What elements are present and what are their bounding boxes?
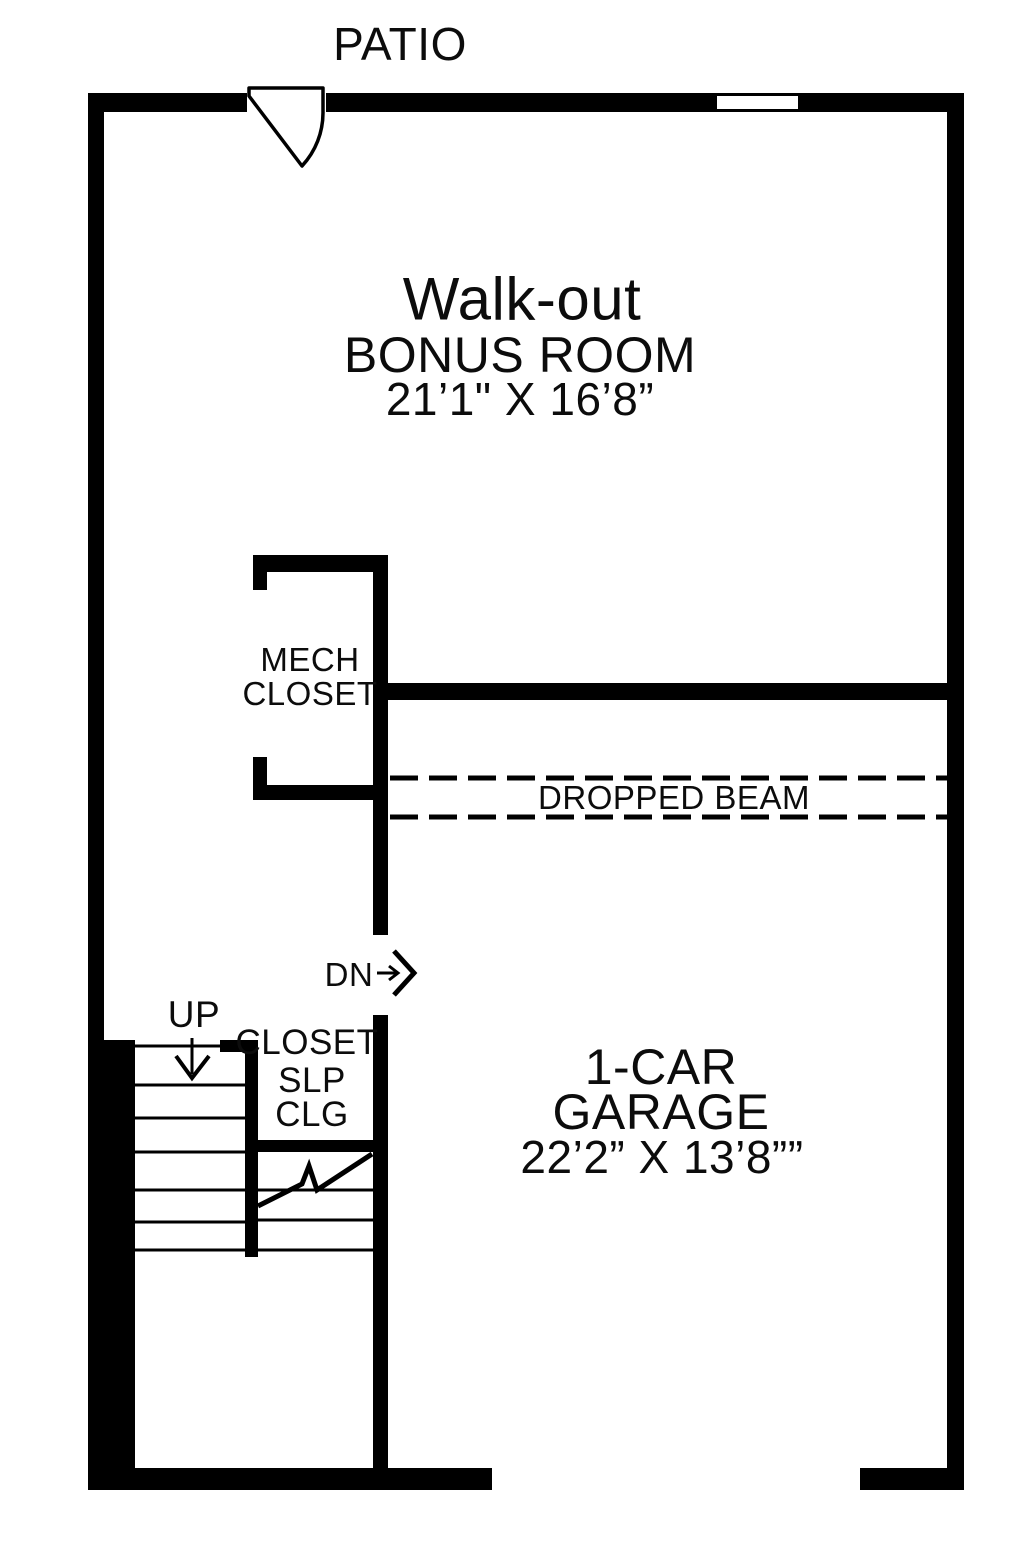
stair-treads-lower-flight <box>135 1190 373 1250</box>
floor-plan: PATIO Walk-out BONUS ROOM 21’1" X 16’8” … <box>0 0 1024 1554</box>
garage-dimensions: 22’2” X 13’8”” <box>520 1130 803 1184</box>
patio-label: PATIO <box>333 17 467 71</box>
plan-linework <box>0 0 1024 1554</box>
under-stair-closet-label-line3: CLG <box>275 1095 348 1135</box>
stair-treads-upper-flight <box>135 1085 245 1222</box>
bonus-room-name-line1: Walk-out <box>403 265 642 334</box>
up-arrow-icon <box>176 1038 209 1078</box>
under-stair-closet-label-line1: CLOSET <box>235 1023 378 1063</box>
dropped-beam-label: DROPPED BEAM <box>538 779 810 817</box>
mech-closet-label-line2: CLOSET <box>242 675 377 713</box>
up-label: UP <box>168 994 220 1036</box>
dn-arrow-icon <box>377 951 414 995</box>
mech-closet-label-line1: MECH <box>260 641 359 679</box>
bonus-room-dimensions: 21’1" X 16’8” <box>386 372 654 426</box>
door-swing-icon <box>249 88 323 166</box>
stair-break-line <box>258 1154 372 1206</box>
dn-label: DN <box>325 956 374 994</box>
